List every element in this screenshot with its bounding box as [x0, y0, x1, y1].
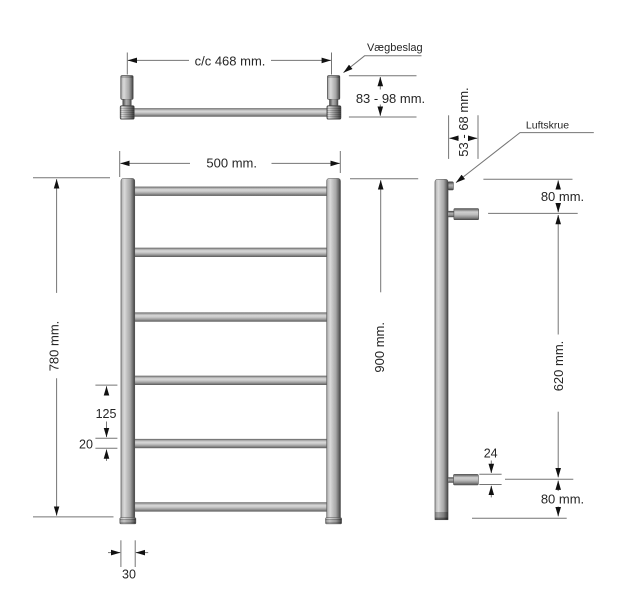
svg-text:620 mm.: 620 mm.: [551, 341, 566, 392]
svg-text:20: 20: [79, 437, 93, 451]
svg-text:780 mm.: 780 mm.: [47, 321, 62, 372]
svg-text:Luftskrue: Luftskrue: [526, 120, 569, 132]
svg-text:125: 125: [96, 407, 117, 421]
svg-text:53 - 68 mm.: 53 - 68 mm.: [456, 87, 471, 156]
svg-text:500 mm.: 500 mm.: [206, 155, 257, 170]
svg-text:80 mm.: 80 mm.: [541, 189, 584, 204]
svg-text:80 mm.: 80 mm.: [541, 491, 584, 506]
svg-text:30: 30: [122, 567, 136, 581]
svg-text:24: 24: [484, 446, 498, 460]
svg-text:c/c 468 mm.: c/c 468 mm.: [195, 54, 266, 69]
svg-text:900 mm.: 900 mm.: [372, 322, 387, 373]
svg-text:83 - 98 mm.: 83 - 98 mm.: [356, 91, 425, 106]
svg-text:Vægbeslag: Vægbeslag: [367, 42, 423, 54]
